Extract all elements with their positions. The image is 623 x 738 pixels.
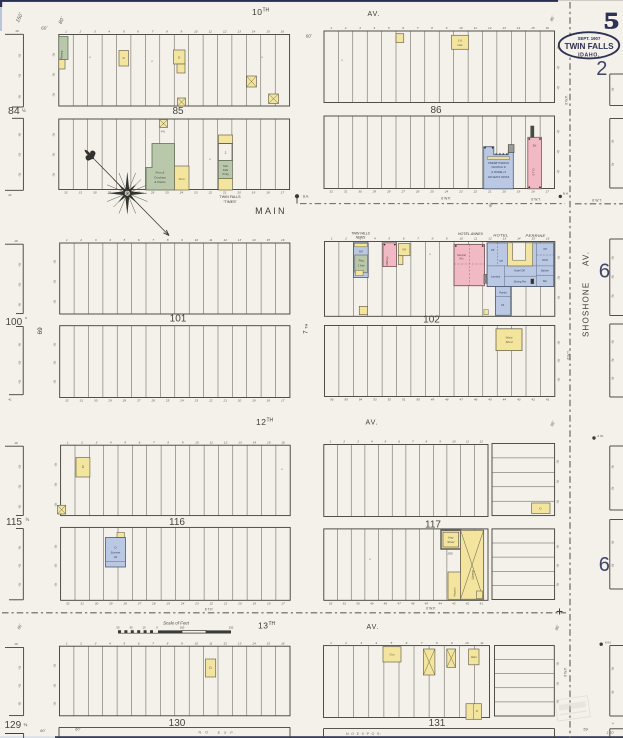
svg-text:50: 50 xyxy=(117,626,120,630)
svg-text:26: 26 xyxy=(150,399,155,403)
svg-text:16: 16 xyxy=(14,642,18,646)
svg-text:Wagons: Wagons xyxy=(454,587,457,597)
svg-text:7: 7 xyxy=(152,30,154,34)
svg-text:w: w xyxy=(209,158,211,161)
svg-text:6´W.P.: 6´W.P. xyxy=(564,667,568,676)
svg-text:w: w xyxy=(341,59,343,62)
svg-text:6: 6 xyxy=(599,554,610,576)
svg-text:60´: 60´ xyxy=(41,26,48,31)
svg-text:51: 51 xyxy=(343,602,347,606)
svg-text:3: 3 xyxy=(95,238,97,242)
svg-text:13: 13 xyxy=(238,641,242,645)
svg-text:Kit.: Kit. xyxy=(501,303,505,307)
svg-text:Off: Off xyxy=(543,247,547,251)
svg-text:Gro: Gro xyxy=(389,653,394,657)
svg-text:43: 43 xyxy=(517,398,521,402)
svg-text:46: 46 xyxy=(411,602,415,606)
svg-text:129: 129 xyxy=(5,720,22,731)
svg-text:SHOSHONE: SHOSHONE xyxy=(582,282,591,337)
svg-text:50: 50 xyxy=(416,398,420,402)
svg-text:22: 22 xyxy=(473,190,478,194)
svg-text:4½: 4½ xyxy=(161,130,166,134)
svg-text:6´W.T.: 6´W.T. xyxy=(531,198,541,202)
svg-text:2: 2 xyxy=(344,237,347,241)
svg-text:5: 5 xyxy=(604,8,619,34)
svg-text:2: 2 xyxy=(596,58,607,80)
svg-text:24: 24 xyxy=(179,191,184,195)
svg-text:6: 6 xyxy=(406,641,408,645)
svg-text:24: 24 xyxy=(180,602,185,606)
svg-text:º: º xyxy=(25,317,27,323)
svg-text:14: 14 xyxy=(252,30,256,34)
svg-text:7: 7 xyxy=(152,641,154,645)
svg-text:22: 22 xyxy=(208,191,213,195)
svg-text:12: 12 xyxy=(256,417,266,427)
svg-text:1: 1 xyxy=(330,641,332,645)
svg-text:12: 12 xyxy=(223,238,227,242)
svg-text:16: 16 xyxy=(546,26,550,30)
svg-text:280: 280 xyxy=(446,552,452,556)
svg-text:Laundry: Laundry xyxy=(491,275,501,279)
svg-text:47: 47 xyxy=(397,602,401,606)
svg-text:130: 130 xyxy=(607,730,615,735)
svg-text:25: 25 xyxy=(165,602,170,606)
svg-text:S T O: S T O xyxy=(532,168,536,176)
svg-text:12: 12 xyxy=(223,641,227,645)
svg-text:7: 7 xyxy=(412,440,414,444)
svg-text:28: 28 xyxy=(122,399,127,403)
svg-text:8: 8 xyxy=(166,30,168,34)
svg-text:42: 42 xyxy=(531,398,535,402)
svg-text:9: 9 xyxy=(446,237,448,241)
svg-text:54: 54 xyxy=(359,398,363,402)
svg-text:6: 6 xyxy=(402,26,404,30)
svg-text:7: 7 xyxy=(303,330,310,334)
svg-text:12: 12 xyxy=(223,30,227,34)
svg-text:29: 29 xyxy=(107,191,112,195)
svg-text:6: 6 xyxy=(403,237,405,241)
svg-text:SEPT. 1907: SEPT. 1907 xyxy=(578,36,601,41)
svg-text:4: 4 xyxy=(371,440,373,444)
svg-text:6: 6 xyxy=(398,440,400,444)
svg-text:15: 15 xyxy=(531,26,535,30)
svg-text:56: 56 xyxy=(330,398,334,402)
svg-text:41: 41 xyxy=(8,398,12,402)
svg-text:6: 6 xyxy=(138,238,140,242)
svg-text:Scale of Feet: Scale of Feet xyxy=(163,621,190,626)
svg-text:Livery: Livery xyxy=(471,570,475,579)
svg-text:26: 26 xyxy=(150,191,155,195)
svg-text:1: 1 xyxy=(67,440,69,444)
svg-text:17: 17 xyxy=(281,399,285,403)
svg-text:D: D xyxy=(114,546,116,550)
svg-text:5: 5 xyxy=(124,238,126,242)
svg-text:N O: N O xyxy=(199,731,210,735)
svg-text:30: 30 xyxy=(93,191,97,195)
svg-text:16: 16 xyxy=(14,239,18,243)
svg-text:115: 115 xyxy=(6,517,22,528)
svg-text:10: 10 xyxy=(195,641,199,645)
svg-text:130: 130 xyxy=(169,718,186,729)
svg-text:13: 13 xyxy=(238,238,242,242)
svg-text:6 IN.: 6 IN. xyxy=(605,641,612,645)
svg-text:117: 117 xyxy=(425,520,441,531)
svg-text:HOTEL: HOTEL xyxy=(493,233,508,238)
svg-text:PERRINE: PERRINE xyxy=(526,233,546,238)
svg-text:Ware: Ware xyxy=(471,655,478,659)
svg-text:9: 9 xyxy=(181,641,183,645)
svg-text:28: 28 xyxy=(122,602,127,606)
svg-text:27: 27 xyxy=(136,399,141,403)
svg-text:46: 46 xyxy=(474,398,478,402)
svg-text:AV.: AV. xyxy=(366,624,379,631)
svg-text:14: 14 xyxy=(517,237,521,241)
svg-text:5: 5 xyxy=(385,440,387,444)
svg-text:½: ½ xyxy=(26,516,30,522)
svg-text:21: 21 xyxy=(487,190,492,194)
svg-text:6: 6 xyxy=(139,440,141,444)
svg-text:2: 2 xyxy=(342,440,345,444)
svg-text:2: 2 xyxy=(344,26,347,30)
svg-text:47: 47 xyxy=(459,398,463,402)
svg-text:6: 6 xyxy=(599,260,610,283)
svg-text:Dining Rm: Dining Rm xyxy=(514,280,527,284)
svg-text:Hay: Hay xyxy=(448,536,454,540)
svg-text:41: 41 xyxy=(479,602,483,606)
svg-text:42: 42 xyxy=(466,602,470,606)
svg-text:85: 85 xyxy=(172,106,184,117)
svg-text:16: 16 xyxy=(15,29,19,33)
svg-text:15: 15 xyxy=(266,30,270,34)
svg-text:Falls: Falls xyxy=(223,168,229,172)
svg-text:Ware: Ware xyxy=(505,336,512,340)
svg-text:16: 16 xyxy=(281,440,285,444)
svg-text:24: 24 xyxy=(179,399,184,403)
svg-text:52: 52 xyxy=(388,398,392,402)
svg-text:3: 3 xyxy=(359,26,361,30)
svg-text:30: 30 xyxy=(94,399,98,403)
svg-text:9: 9 xyxy=(181,238,183,242)
svg-text:Pantry: Pantry xyxy=(499,291,507,295)
svg-text:w: w xyxy=(281,468,283,471)
svg-text:Hse: Hse xyxy=(458,43,463,47)
svg-text:25: 25 xyxy=(429,190,434,194)
svg-text:17: 17 xyxy=(281,602,285,606)
svg-text:13: 13 xyxy=(238,440,242,444)
svg-text:IDAHO.: IDAHO. xyxy=(578,52,600,58)
svg-text:30: 30 xyxy=(95,602,99,606)
svg-text:18: 18 xyxy=(267,602,271,606)
svg-text:15: 15 xyxy=(267,238,271,242)
svg-text:55: 55 xyxy=(344,398,348,402)
svg-text:5: 5 xyxy=(391,641,393,645)
svg-text:Htl: Htl xyxy=(114,555,118,559)
svg-text:4: 4 xyxy=(374,26,376,30)
svg-text:102: 102 xyxy=(423,315,440,326)
svg-text:1: 1 xyxy=(330,440,332,444)
svg-text:TH: TH xyxy=(267,418,274,424)
svg-text:84: 84 xyxy=(8,105,20,117)
svg-text:15: 15 xyxy=(267,641,271,645)
svg-text:101: 101 xyxy=(170,314,187,325)
svg-text:26: 26 xyxy=(151,602,156,606)
svg-text:29: 29 xyxy=(107,399,112,403)
svg-text:4: 4 xyxy=(374,237,376,241)
svg-text:9: 9 xyxy=(181,30,183,34)
svg-text:23: 23 xyxy=(193,191,198,195)
svg-text:11: 11 xyxy=(480,641,483,645)
svg-text:14: 14 xyxy=(253,440,257,444)
svg-text:Furn: Furn xyxy=(179,177,186,181)
svg-text:31: 31 xyxy=(79,191,83,195)
svg-text:7: 7 xyxy=(421,641,423,645)
svg-text:3: 3 xyxy=(357,440,359,444)
svg-text:53: 53 xyxy=(373,398,377,402)
svg-text:10: 10 xyxy=(143,626,146,630)
svg-text:B.H.: B.H. xyxy=(563,192,569,196)
svg-text:29: 29 xyxy=(108,602,113,606)
svg-text:10: 10 xyxy=(252,7,262,17)
svg-text:Sample: Sample xyxy=(457,253,466,257)
svg-text:52: 52 xyxy=(329,602,333,606)
svg-text:Barber: Barber xyxy=(541,269,549,273)
svg-text:27: 27 xyxy=(400,190,405,194)
svg-text:11: 11 xyxy=(466,440,469,444)
svg-text:Millinery: Millinery xyxy=(385,256,389,266)
svg-text:60´: 60´ xyxy=(40,728,46,733)
svg-text:13: 13 xyxy=(258,620,268,630)
svg-text:10: 10 xyxy=(195,440,199,444)
svg-text:¼: ¼ xyxy=(24,722,28,727)
svg-text:18: 18 xyxy=(266,191,270,195)
svg-text:11: 11 xyxy=(209,641,212,645)
svg-text:23: 23 xyxy=(194,602,199,606)
svg-text:Prntg: Prntg xyxy=(222,172,229,176)
svg-text:TWIN FALLS: TWIN FALLS xyxy=(220,195,242,199)
svg-text:N O E X P O S:: N O E X P O S: xyxy=(346,732,382,736)
svg-text:5: 5 xyxy=(124,440,126,444)
svg-text:w: w xyxy=(429,253,431,256)
svg-text:w: w xyxy=(151,60,153,63)
svg-text:(1 MODEL) S: (1 MODEL) S xyxy=(491,171,506,174)
svg-text:5: 5 xyxy=(123,641,125,645)
svg-text:45: 45 xyxy=(425,602,429,606)
svg-text:5: 5 xyxy=(388,26,390,30)
svg-text:4: 4 xyxy=(109,238,111,242)
svg-text:Furn &: Furn & xyxy=(155,171,164,175)
svg-text:Off D: Off D xyxy=(542,258,548,262)
svg-text:28: 28 xyxy=(386,190,391,194)
svg-text:19: 19 xyxy=(252,399,256,403)
svg-text:16: 16 xyxy=(281,30,285,34)
svg-text:10: 10 xyxy=(194,30,198,34)
svg-text:4: 4 xyxy=(375,641,377,645)
svg-text:11: 11 xyxy=(474,237,477,241)
svg-text:20: 20 xyxy=(501,190,506,194)
svg-text:100: 100 xyxy=(180,626,185,630)
svg-text:10: 10 xyxy=(195,238,199,242)
svg-text:16: 16 xyxy=(546,237,550,241)
svg-text:24: 24 xyxy=(444,190,449,194)
svg-text:22: 22 xyxy=(209,602,214,606)
svg-text:8: 8 xyxy=(436,641,438,645)
svg-text:1: 1 xyxy=(65,30,67,34)
svg-text:Twin: Twin xyxy=(223,164,229,168)
svg-text:10: 10 xyxy=(459,26,463,30)
svg-text:1½: 1½ xyxy=(458,39,463,43)
svg-text:8: 8 xyxy=(431,26,433,30)
svg-text:E X P.: E X P. xyxy=(218,731,237,735)
svg-text:MAIN: MAIN xyxy=(255,206,287,216)
svg-text:44: 44 xyxy=(438,602,442,606)
svg-text:AV.: AV. xyxy=(365,420,378,427)
svg-text:6´W.T.: 6´W.T. xyxy=(592,199,602,203)
svg-text:27: 27 xyxy=(137,602,142,606)
svg-text:8: 8 xyxy=(432,237,434,241)
svg-text:25: 25 xyxy=(164,191,169,195)
svg-text:41: 41 xyxy=(546,398,550,402)
svg-text:6´W.P.: 6´W.P. xyxy=(441,197,451,201)
svg-text:14: 14 xyxy=(252,641,256,645)
svg-text:50: 50 xyxy=(356,602,360,606)
svg-text:D: D xyxy=(476,709,478,713)
svg-text:13: 13 xyxy=(237,30,241,34)
svg-text:AV.: AV. xyxy=(367,11,380,18)
svg-text:2: 2 xyxy=(79,30,82,34)
svg-text:9: 9 xyxy=(439,440,441,444)
svg-text:9: 9 xyxy=(446,26,448,30)
svg-text:2: 2 xyxy=(79,238,82,242)
svg-text:TH: TH xyxy=(269,621,276,627)
svg-text:12: 12 xyxy=(488,237,492,241)
svg-text:6: 6 xyxy=(138,641,140,645)
svg-text:7: 7 xyxy=(417,237,419,241)
svg-text:& Paints: & Paints xyxy=(154,180,166,184)
svg-text:20: 20 xyxy=(237,399,242,403)
svg-text:6´W.P.: 6´W.P. xyxy=(426,607,436,611)
svg-text:8: 8 xyxy=(167,440,169,444)
svg-text:1: 1 xyxy=(66,641,68,645)
svg-text:1: 1 xyxy=(331,237,333,241)
svg-text:18: 18 xyxy=(267,399,271,403)
svg-text:8: 8 xyxy=(426,440,428,444)
svg-text:PRESBYTERIAN: PRESBYTERIAN xyxy=(488,161,509,165)
svg-text:2: 2 xyxy=(344,641,347,645)
svg-text:2: 2 xyxy=(80,440,83,444)
svg-text:½: ½ xyxy=(22,107,26,113)
svg-text:9: 9 xyxy=(182,440,184,444)
svg-text:3: 3 xyxy=(96,440,98,444)
svg-text:Crockery: Crockery xyxy=(154,175,167,179)
svg-text:19: 19 xyxy=(517,190,521,194)
svg-text:TH: TH xyxy=(304,324,309,329)
svg-text:w: w xyxy=(261,56,263,59)
svg-text:18: 18 xyxy=(531,190,535,194)
svg-text:2: 2 xyxy=(225,151,227,155)
svg-text:17: 17 xyxy=(281,191,285,195)
svg-text:49: 49 xyxy=(370,602,374,606)
svg-text:10: 10 xyxy=(465,641,469,645)
svg-text:14: 14 xyxy=(517,26,521,30)
svg-text:5: 5 xyxy=(123,30,125,34)
svg-text:“TIMES”: “TIMES” xyxy=(223,200,237,204)
svg-text:31: 31 xyxy=(80,399,84,403)
svg-text:86: 86 xyxy=(430,105,442,116)
svg-text:6´T.P.: 6´T.P. xyxy=(205,608,214,612)
svg-text:11: 11 xyxy=(474,26,477,30)
svg-text:31: 31 xyxy=(344,190,348,194)
svg-text:32: 32 xyxy=(66,602,70,606)
svg-text:9: 9 xyxy=(451,641,453,645)
svg-text:20: 20 xyxy=(237,602,242,606)
svg-text:41: 41 xyxy=(8,193,12,197)
svg-text:TH: TH xyxy=(263,8,270,14)
svg-text:6´W.T.: 6´W.T. xyxy=(567,350,571,359)
svg-text:21: 21 xyxy=(222,399,227,403)
svg-text:116: 116 xyxy=(169,517,185,528)
svg-text:16: 16 xyxy=(281,238,285,242)
svg-text:100: 100 xyxy=(6,317,23,328)
svg-text:19: 19 xyxy=(253,602,257,606)
svg-text:29: 29 xyxy=(372,190,377,194)
svg-text:12: 12 xyxy=(479,440,483,444)
svg-text:AV.: AV. xyxy=(582,251,591,266)
svg-text:32: 32 xyxy=(65,399,69,403)
svg-text:w: w xyxy=(89,56,91,59)
svg-text:14: 14 xyxy=(252,238,256,242)
svg-text:1: 1 xyxy=(330,26,332,30)
svg-text:150: 150 xyxy=(229,626,234,630)
svg-text:Hotel Off: Hotel Off xyxy=(514,269,525,273)
svg-text:60´: 60´ xyxy=(75,727,81,732)
svg-text:12: 12 xyxy=(224,440,228,444)
svg-text:44: 44 xyxy=(503,398,507,402)
svg-text:32: 32 xyxy=(329,190,333,194)
svg-text:10: 10 xyxy=(452,440,456,444)
svg-text:19: 19 xyxy=(252,191,256,195)
svg-text:51: 51 xyxy=(402,398,406,402)
svg-text:5: 5 xyxy=(388,237,390,241)
svg-text:31: 31 xyxy=(80,602,84,606)
svg-text:CHURCH D: CHURCH D xyxy=(491,165,505,169)
svg-text:43: 43 xyxy=(452,602,456,606)
svg-text:69: 69 xyxy=(37,327,44,335)
svg-text:Off: Off xyxy=(499,259,503,263)
svg-text:32: 32 xyxy=(64,191,68,195)
svg-text:21: 21 xyxy=(223,602,228,606)
svg-text:Shed: Shed xyxy=(447,540,454,544)
svg-text:10: 10 xyxy=(459,237,463,241)
svg-text:7: 7 xyxy=(153,440,155,444)
svg-text:8: 8 xyxy=(167,238,169,242)
svg-text:3: 3 xyxy=(94,30,96,34)
svg-text:13: 13 xyxy=(502,26,506,30)
svg-text:22: 22 xyxy=(208,399,213,403)
svg-text:15: 15 xyxy=(267,440,271,444)
svg-text:2: 2 xyxy=(79,641,82,645)
svg-text:48: 48 xyxy=(445,398,449,402)
svg-text:8: 8 xyxy=(167,641,169,645)
svg-text:16: 16 xyxy=(14,441,18,445)
svg-text:11: 11 xyxy=(210,440,213,444)
svg-text:30: 30 xyxy=(358,190,362,194)
svg-text:11: 11 xyxy=(209,30,212,34)
svg-text:49: 49 xyxy=(431,398,435,402)
svg-text:1 Hse: 1 Hse xyxy=(358,264,365,268)
svg-text:30: 30 xyxy=(130,626,133,630)
svg-text:48: 48 xyxy=(384,602,388,606)
svg-text:Shed: Shed xyxy=(505,340,512,344)
